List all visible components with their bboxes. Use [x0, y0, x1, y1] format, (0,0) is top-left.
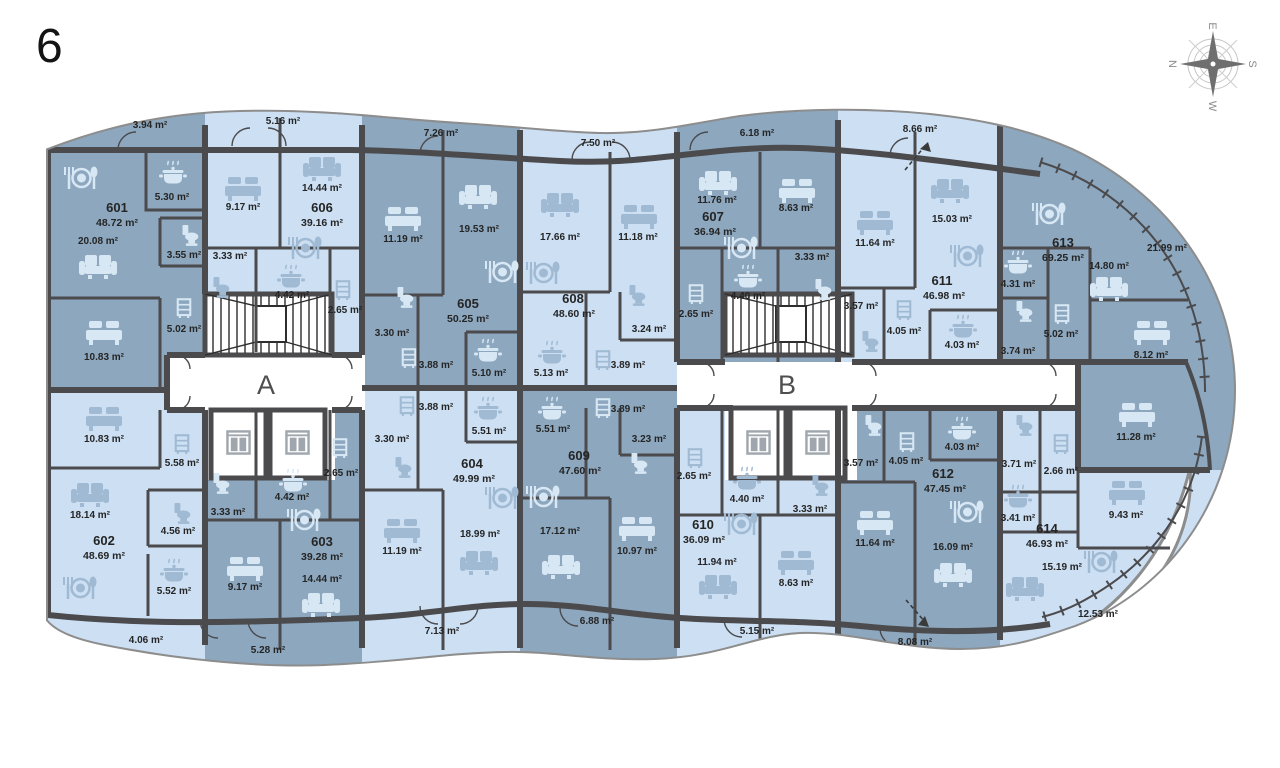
- balcony-area-label: 6.18 m²: [740, 128, 775, 139]
- apartment-area: 47.45 m²: [924, 483, 967, 495]
- apartment-area: 69.25 m²: [1042, 252, 1085, 264]
- room-area-label: 5.13 m²: [534, 368, 569, 379]
- room-area-label: 4.40 m²: [731, 291, 766, 302]
- room-area-label: 11.19 m²: [382, 546, 422, 557]
- compass-east-label: E: [1206, 22, 1218, 29]
- stairwell-b-label: B: [778, 370, 796, 400]
- apartment-area: 36.94 m²: [694, 226, 737, 238]
- elevator-shaft: [211, 410, 266, 478]
- stairwell-a-label: A: [257, 370, 275, 400]
- compass-rose: E S W N: [1166, 22, 1258, 111]
- room-area-label: 3.57 m²: [844, 458, 879, 469]
- room-area-label: 8.63 m²: [779, 203, 814, 214]
- balcony-area-label: 8.08 m²: [898, 637, 933, 648]
- apartment-number: 612: [932, 466, 954, 481]
- apartment-area: 39.28 m²: [301, 551, 344, 563]
- room-area-label: 5.58 m²: [165, 458, 200, 469]
- balcony-area-label: 8.66 m²: [903, 124, 938, 135]
- room-area-label: 11.76 m²: [697, 195, 737, 206]
- room-area-label: 14.44 m²: [302, 183, 343, 194]
- room-area-label: 5.51 m²: [536, 424, 571, 435]
- room-area-label: 15.03 m²: [932, 214, 973, 225]
- room-area-label: 5.02 m²: [1044, 329, 1079, 340]
- room-area-label: 3.88 m²: [419, 360, 454, 371]
- room-area-label: 5.10 m²: [472, 368, 507, 379]
- apartment-area: 50.25 m²: [447, 313, 490, 325]
- elevator-shaft: [270, 410, 325, 478]
- apartment-number: 603: [311, 534, 333, 549]
- apartment-601-region[interactable]: [48, 100, 205, 390]
- room-area-label: 3.24 m²: [632, 324, 667, 335]
- room-area-label: 4.03 m²: [945, 442, 980, 453]
- room-area-label: 11.18 m²: [618, 232, 658, 243]
- apartment-number: 606: [311, 200, 333, 215]
- room-area-label: 14.80 m²: [1089, 261, 1130, 272]
- apartment-number: 609: [568, 448, 590, 463]
- room-area-label: 5.30 m²: [155, 192, 190, 203]
- room-area-label: 17.12 m²: [540, 526, 581, 537]
- room-area-label: 4.56 m²: [161, 526, 196, 537]
- balcony-area-label: 4.06 m²: [129, 635, 164, 646]
- room-area-label: 10.83 m²: [84, 352, 125, 363]
- apartment-area: 48.69 m²: [83, 550, 126, 562]
- corridor-b: [677, 362, 1078, 408]
- room-area-label: 3.55 m²: [167, 250, 202, 261]
- apartment-area: 46.93 m²: [1026, 538, 1069, 550]
- apartment-area: 46.98 m²: [923, 290, 966, 302]
- apartment-number: 614: [1036, 521, 1058, 536]
- apartment-area: 47.60 m²: [559, 465, 602, 477]
- room-area-label: 2.66 m²: [1044, 466, 1079, 477]
- room-area-label: 16.09 m²: [933, 542, 974, 553]
- room-area-label: 9.17 m²: [228, 582, 263, 593]
- room-area-label: 11.64 m²: [855, 538, 895, 549]
- stairwell-b: [725, 294, 852, 355]
- floor-plan-page: 6 E S W N: [0, 0, 1280, 768]
- room-area-label: 3.57 m²: [844, 301, 879, 312]
- apartment-number: 604: [461, 456, 483, 471]
- room-area-label: 2.65 m²: [679, 309, 714, 320]
- room-area-label: 19.53 m²: [459, 224, 500, 235]
- room-area-label: 2.65 m²: [677, 471, 712, 482]
- compass-west-label: W: [1206, 101, 1218, 112]
- room-area-label: 18.99 m²: [460, 529, 501, 540]
- floor-number: 6: [36, 20, 63, 73]
- balcony-area-label: 7.50 m²: [581, 138, 616, 149]
- room-area-label: 3.41 m²: [1001, 513, 1036, 524]
- compass-south-label: S: [1246, 60, 1258, 67]
- room-area-label: 5.51 m²: [472, 426, 507, 437]
- room-area-label: 3.30 m²: [375, 434, 410, 445]
- room-area-label: 3.89 m²: [611, 360, 646, 371]
- room-area-label: 11.94 m²: [697, 557, 737, 568]
- balcony-area-label: 5.15 m²: [740, 626, 775, 637]
- room-area-label: 11.64 m²: [855, 238, 895, 249]
- room-area-label: 9.17 m²: [226, 202, 261, 213]
- room-area-label: 4.03 m²: [945, 340, 980, 351]
- apartment-number: 602: [93, 533, 115, 548]
- balcony-area-label: 3.94 m²: [133, 120, 168, 131]
- room-area-label: 3.23 m²: [632, 434, 667, 445]
- balcony-area-label: 5.16 m²: [266, 116, 301, 127]
- compass-north-label: N: [1166, 60, 1178, 68]
- room-area-label: 4.05 m²: [889, 456, 924, 467]
- room-area-label: 17.66 m²: [540, 232, 581, 243]
- room-area-label: 9.43 m²: [1109, 510, 1144, 521]
- apartment-number: 608: [562, 291, 584, 306]
- terrace-area-label: 12.53 m²: [1078, 609, 1119, 620]
- stairwell-a: [205, 294, 332, 355]
- room-area-label: 3.30 m²: [375, 328, 410, 339]
- room-area-label: 15.19 m²: [1042, 562, 1083, 573]
- room-area-label: 4.42 m²: [275, 492, 310, 503]
- terrace-area-label: 21.99 m²: [1147, 243, 1188, 254]
- room-area-label: 3.74 m²: [1001, 346, 1036, 357]
- room-area-label: 2.65 m²: [328, 305, 363, 316]
- room-area-label: 3.89 m²: [611, 404, 646, 415]
- room-area-label: 11.28 m²: [1116, 432, 1156, 443]
- room-area-label: 10.97 m²: [617, 546, 658, 557]
- balcony-area-label: 7.13 m²: [425, 626, 460, 637]
- apartment-area: 48.60 m²: [553, 308, 596, 320]
- apartment-number: 601: [106, 200, 128, 215]
- room-area-label: 8.63 m²: [779, 578, 814, 589]
- room-area-label: 3.71 m²: [1002, 459, 1037, 470]
- room-area-label: 3.33 m²: [793, 504, 828, 515]
- room-area-label: 18.14 m²: [70, 510, 111, 521]
- room-area-label: 5.02 m²: [167, 324, 202, 335]
- room-area-label: 2.65 m²: [324, 468, 359, 479]
- room-area-label: 14.44 m²: [302, 574, 343, 585]
- room-area-label: 4.40 m²: [730, 494, 765, 505]
- room-area-label: 10.83 m²: [84, 434, 125, 445]
- apartment-area: 39.16 m²: [301, 217, 344, 229]
- apartment-number: 610: [692, 517, 714, 532]
- apartment-number: 605: [457, 296, 479, 311]
- room-area-label: 4.05 m²: [887, 326, 922, 337]
- balcony-area-label: 6.88 m²: [580, 616, 615, 627]
- apartment-number: 607: [702, 209, 724, 224]
- apartment-number: 611: [932, 273, 953, 288]
- apartment-area: 36.09 m²: [683, 534, 726, 546]
- room-area-label: 11.19 m²: [383, 234, 423, 245]
- balcony-area-label: 5.28 m²: [251, 645, 286, 656]
- apartment-number: 613: [1052, 235, 1074, 250]
- room-area-label: 4.31 m²: [1001, 279, 1036, 290]
- room-area-label: 3.33 m²: [213, 251, 248, 262]
- room-area-label: 5.52 m²: [157, 586, 192, 597]
- room-area-label: 8.12 m²: [1134, 350, 1169, 361]
- room-area-label: 20.08 m²: [78, 236, 119, 247]
- room-area-label: 3.88 m²: [419, 402, 454, 413]
- room-area-label: 3.33 m²: [211, 507, 246, 518]
- room-area-label: 4.42 m²: [275, 290, 310, 301]
- apartment-area: 49.99 m²: [453, 473, 496, 485]
- apartment-area: 48.72 m²: [96, 217, 139, 229]
- floor-plan-canvas: 6 E S W N: [0, 0, 1280, 768]
- balcony-area-label: 7.26 m²: [424, 128, 459, 139]
- room-area-label: 3.33 m²: [795, 252, 830, 263]
